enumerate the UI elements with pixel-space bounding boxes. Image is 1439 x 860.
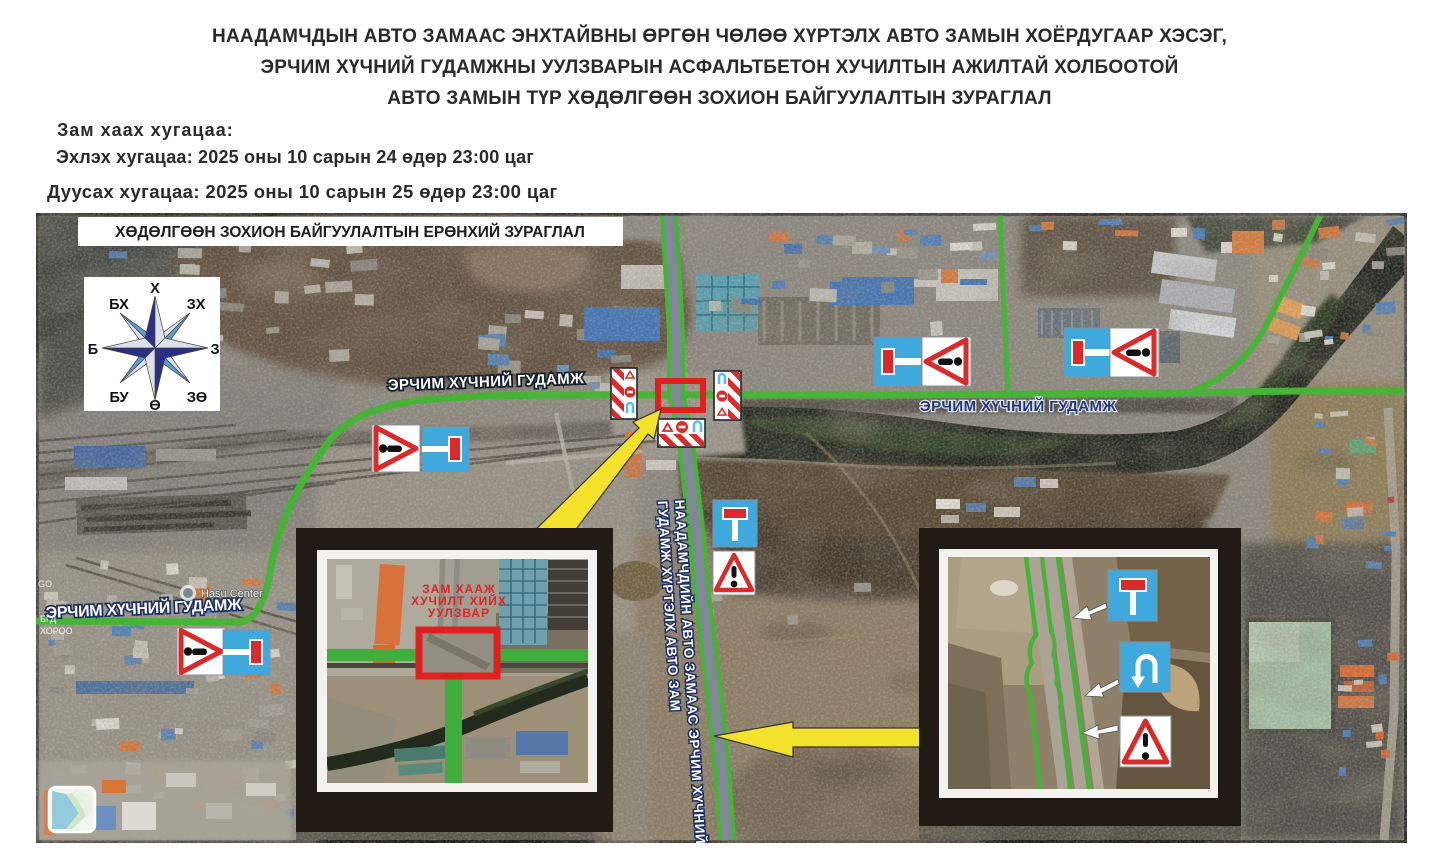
svg-text:ЗӨ: ЗӨ — [187, 390, 207, 406]
svg-text:Hasu Center: Hasu Center — [201, 588, 263, 600]
svg-text:БХ: БХ — [109, 297, 129, 313]
svg-text:ЭРЧИМ ХҮЧНИЙ ГУДАМЖ: ЭРЧИМ ХҮЧНИЙ ГУДАМЖ — [920, 397, 1116, 415]
svg-text:GO: GO — [38, 579, 52, 589]
svg-text:X: X — [150, 281, 160, 297]
svg-text:З: З — [210, 342, 219, 358]
svg-text:УУЛЗВАР: УУЛЗВАР — [428, 606, 490, 620]
svg-text:Ө: Ө — [149, 398, 160, 414]
svg-text:БГД: БГД — [40, 614, 56, 624]
svg-text:ХОРОО: ХОРОО — [40, 626, 73, 636]
svg-text:Б: Б — [88, 342, 98, 358]
svg-text:БУ: БУ — [109, 390, 129, 406]
svg-text:ХӨДӨЛГӨӨН ЗОХИОН БАЙГУУЛАЛТЫН: ХӨДӨЛГӨӨН ЗОХИОН БАЙГУУЛАЛТЫН ЕРӨНХИЙ ЗУ… — [115, 223, 585, 241]
svg-text:ЗХ: ЗХ — [187, 297, 206, 313]
